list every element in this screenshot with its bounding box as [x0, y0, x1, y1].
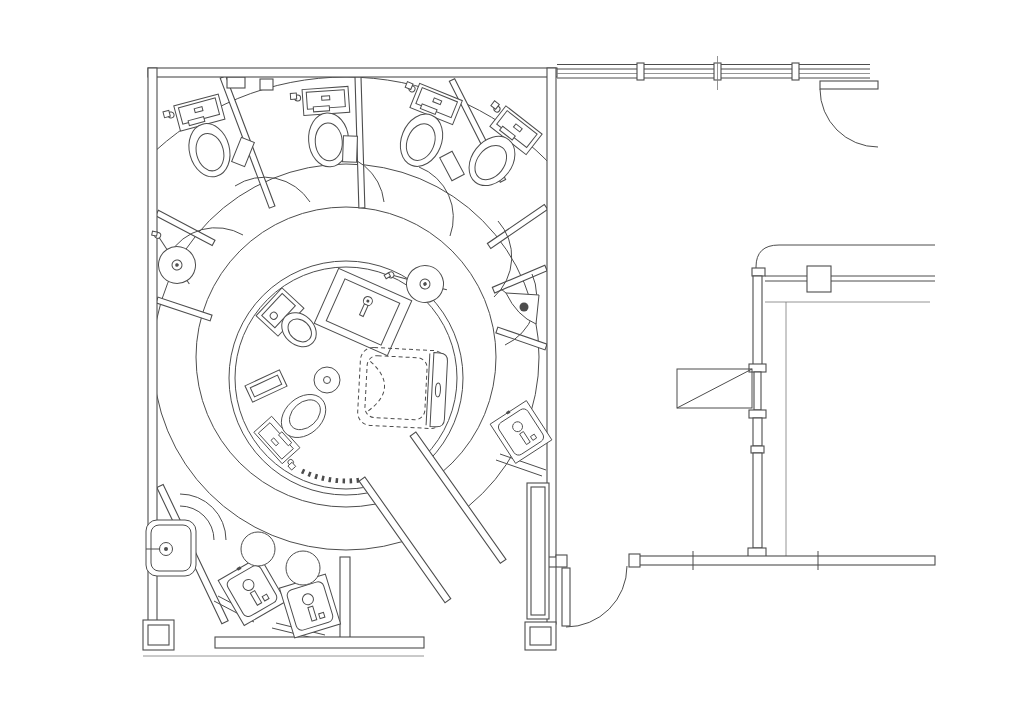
floor-plan-page: [0, 0, 1024, 724]
mullion-3: [792, 63, 799, 80]
adjacent-room: [557, 56, 935, 627]
bathtub: [357, 347, 448, 429]
bottom-wall-right-room: [629, 551, 935, 570]
floor-plan-canvas: [0, 0, 1024, 724]
sidelight: [754, 372, 761, 410]
partition-wall-right-room: [748, 268, 766, 557]
tp-holder-3: [440, 151, 465, 181]
utility-sink: [146, 520, 196, 576]
toilet-stall-4: [448, 98, 542, 196]
wall-top: [148, 68, 557, 77]
entry-corridor: [358, 432, 506, 604]
interior-counter: [756, 245, 935, 556]
tp-holder-2: [343, 136, 358, 162]
stall-sink-square: [489, 399, 551, 463]
shelf-with-diagonal: [677, 369, 752, 408]
stall-door-arcs: [169, 154, 537, 540]
door-top-right: [820, 81, 878, 147]
wall-bottom: [215, 637, 424, 648]
tp-holder-1: [232, 137, 255, 166]
central-vanity-sink: [314, 268, 411, 355]
vanity-basin-1: [217, 555, 285, 625]
corner-sink-triangular: [501, 289, 539, 324]
floor-drain: [314, 367, 340, 393]
floor-hatch: [302, 471, 360, 481]
pier-bottom-center: [340, 557, 350, 646]
mullion-1: [637, 63, 644, 80]
stool-2: [286, 551, 320, 585]
door-jamb: [629, 554, 640, 567]
stool-1: [241, 532, 275, 566]
counter-block: [807, 266, 831, 292]
central-shelf: [245, 370, 287, 402]
door-bottom-left: [562, 566, 627, 627]
toilet-stall-1: [162, 94, 238, 185]
wall-right-notch: [556, 555, 567, 567]
central-toilet: [254, 384, 344, 472]
